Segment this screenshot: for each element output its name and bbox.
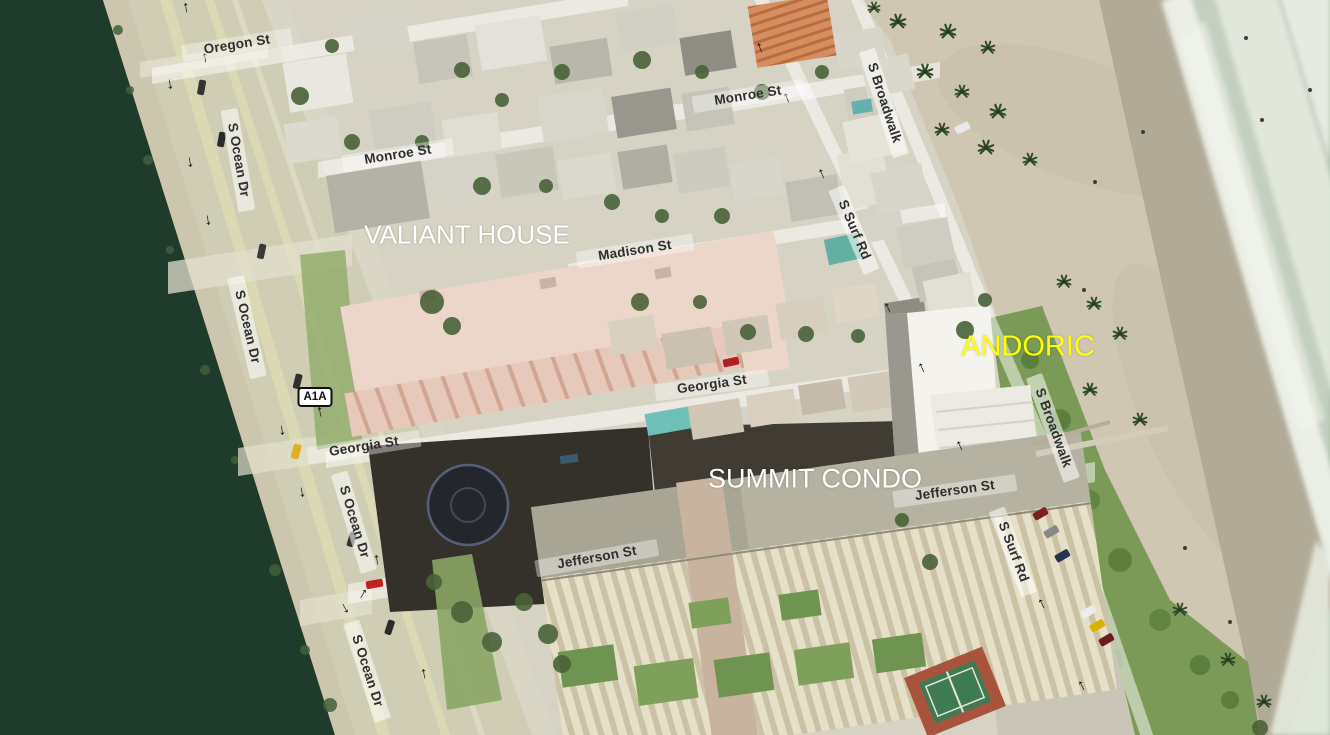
place-label-valiant-house: VALIANT HOUSE: [364, 220, 570, 251]
aerial-map-viewport[interactable]: ↑ ↑ ↑ ↑ ↑ ↑ ↑ ↑ ↑ ↑ ↑ ↑ ↑ ↑ ↑ ↑ ↑ ↑ ↑ ↑ …: [0, 0, 1330, 735]
place-label-summit-condo: SUMMIT CONDO: [708, 464, 922, 495]
route-shield-a1a: A1A: [297, 387, 332, 407]
aerial-imagery: [0, 0, 1330, 735]
place-label-andoric: ANDORIC: [961, 331, 1095, 364]
